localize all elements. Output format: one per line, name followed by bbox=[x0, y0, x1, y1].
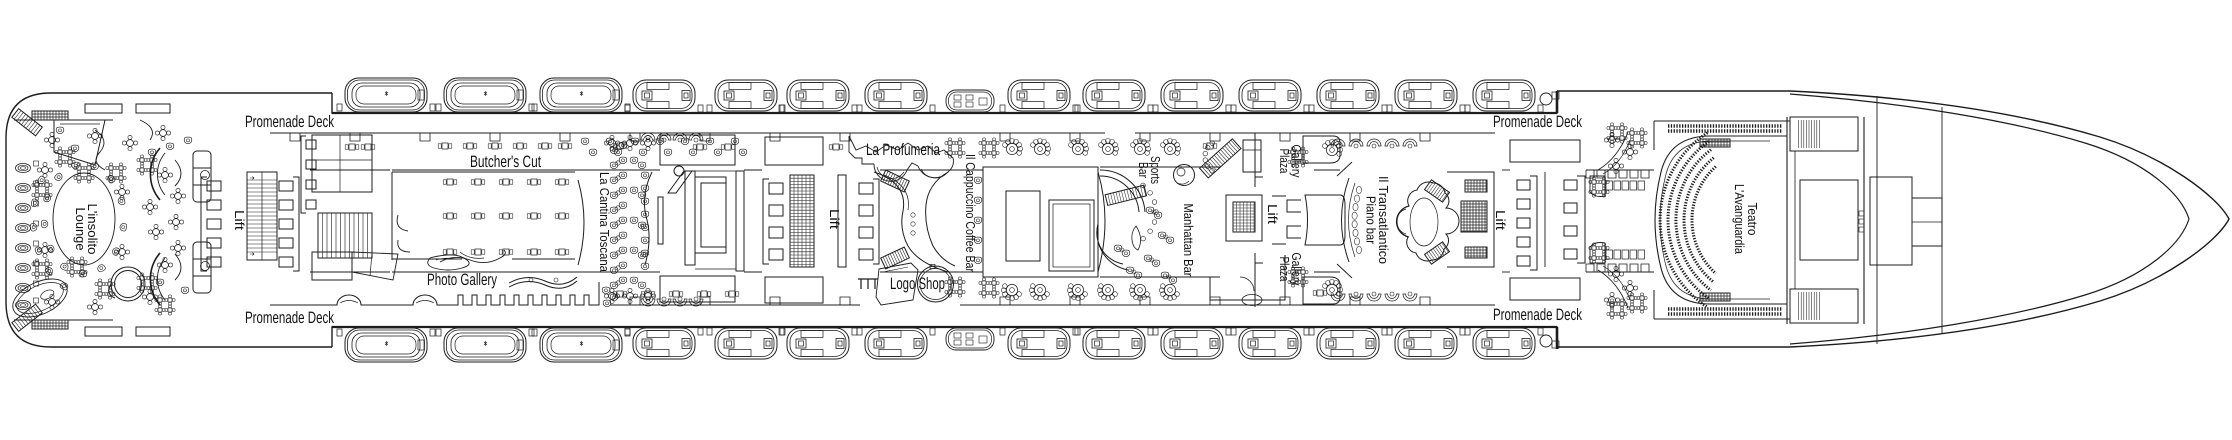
svg-text:Plaza: Plaza bbox=[1277, 149, 1291, 174]
svg-text:Piano bar: Piano bar bbox=[1364, 196, 1378, 244]
svg-text:Promenade Deck: Promenade Deck bbox=[1493, 306, 1583, 324]
svg-text:Plaza: Plaza bbox=[1277, 257, 1291, 282]
svg-text:Lift: Lift bbox=[232, 210, 246, 231]
svg-text:Bar: Bar bbox=[1136, 162, 1150, 178]
svg-text:Teatro: Teatro bbox=[1745, 203, 1759, 236]
svg-text:Lounge: Lounge bbox=[73, 208, 87, 251]
svg-text:Promenade Deck: Promenade Deck bbox=[1493, 113, 1583, 131]
svg-text:Manhattan Bar: Manhattan Bar bbox=[1181, 204, 1195, 277]
svg-text:L'Avanguardia: L'Avanguardia bbox=[1732, 184, 1746, 254]
svg-text:Photo Gallery: Photo Gallery bbox=[427, 271, 498, 289]
svg-text:Butcher's Cut: Butcher's Cut bbox=[470, 153, 541, 171]
svg-text:Lift: Lift bbox=[1265, 204, 1279, 225]
svg-text:La Cantina Toscana: La Cantina Toscana bbox=[597, 172, 611, 272]
svg-text:Lift: Lift bbox=[1493, 210, 1507, 231]
svg-text:Promenade Deck: Promenade Deck bbox=[245, 113, 335, 131]
svg-text:Promenade Deck: Promenade Deck bbox=[245, 309, 335, 327]
svg-text:Lift: Lift bbox=[827, 209, 841, 230]
svg-text:La Profumeria: La Profumeria bbox=[866, 141, 941, 159]
svg-text:Il Cappuccino Coffee Bar: Il Cappuccino Coffee Bar bbox=[963, 154, 977, 272]
